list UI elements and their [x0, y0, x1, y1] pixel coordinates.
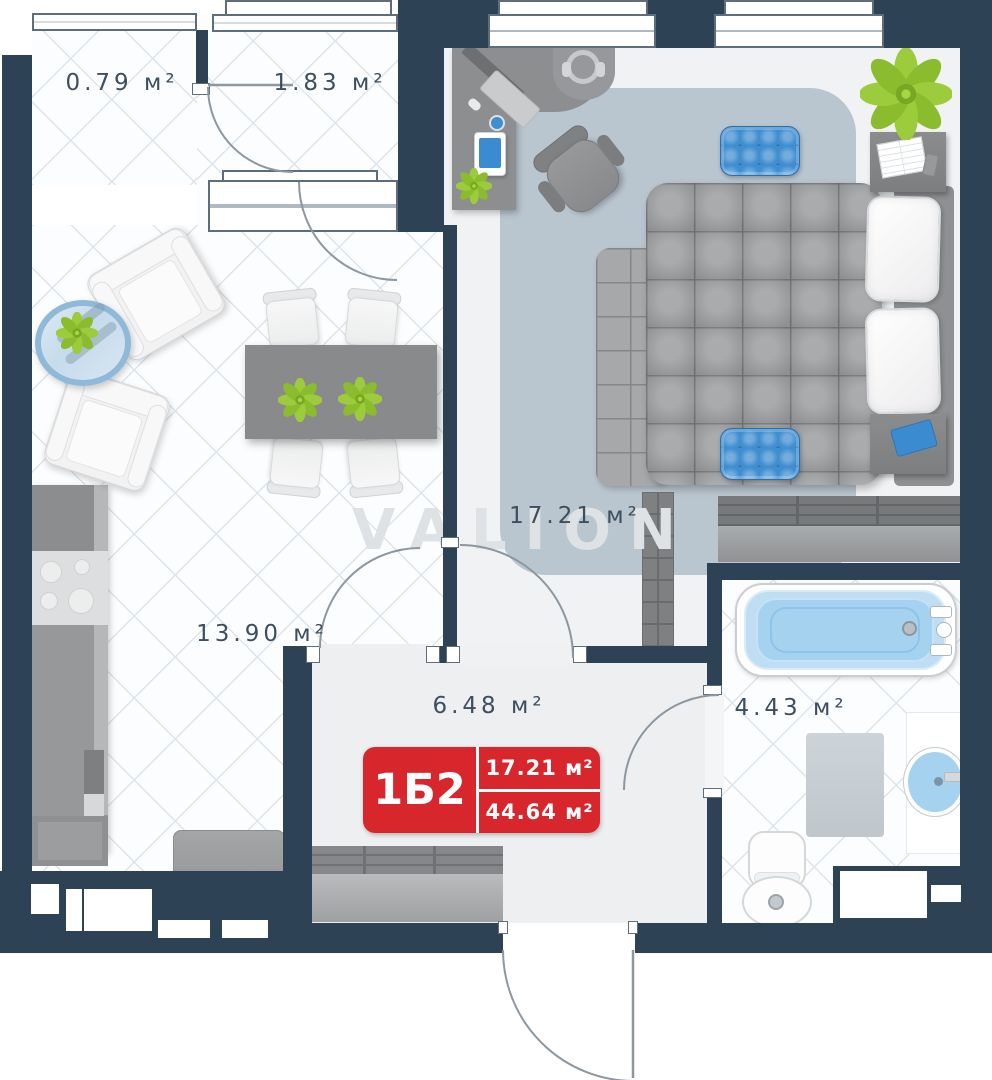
fridge: [38, 822, 102, 860]
balcony-large-area-label: 1.83 м²: [273, 70, 386, 96]
dining-chair: [341, 287, 403, 351]
wardrobe: [718, 526, 960, 562]
headphones-icon: [562, 62, 571, 77]
dining-chair: [343, 435, 405, 499]
sink-drain-icon: [934, 777, 943, 786]
kitchen-cabinet: [32, 485, 94, 551]
plant: [860, 48, 952, 140]
door-frame: [573, 646, 587, 663]
pouf: [720, 126, 800, 176]
window: [488, 14, 656, 48]
floor-plan: VALION: [0, 0, 992, 1080]
pouf: [720, 428, 800, 480]
door-frame: [703, 788, 722, 798]
balcony-small-area-label: 0.79 м²: [65, 70, 178, 96]
door-opening: [458, 644, 575, 665]
wall-niche: [66, 889, 82, 931]
kitchen-sink: [84, 750, 104, 794]
wall: [2, 55, 32, 953]
drain-icon: [902, 621, 917, 636]
bathtub-inner-ring: [770, 607, 920, 653]
webcam-icon: [489, 115, 505, 131]
desk-plant-icon: [456, 168, 492, 204]
unit-total-area: 44.64 м²: [479, 792, 600, 834]
wall: [398, 14, 444, 232]
door-frame: [703, 685, 722, 695]
tablet-screen: [479, 138, 501, 168]
bath-mat: [806, 733, 884, 837]
wall-niche: [840, 871, 908, 918]
stove: [32, 551, 108, 625]
headphones-icon: [566, 50, 600, 84]
burner-icon: [74, 559, 90, 575]
wall-niche: [931, 885, 961, 902]
wall: [960, 0, 992, 953]
door-frame: [628, 921, 638, 934]
balcony-window: [208, 180, 398, 232]
wardrobe: [718, 496, 960, 526]
door-opening: [503, 923, 635, 953]
window: [212, 14, 398, 32]
wall-niche: [222, 920, 268, 938]
unit-badge: 1Б2 17.21 м² 44.64 м²: [363, 747, 600, 833]
window: [714, 14, 884, 48]
wall-niche: [908, 871, 927, 918]
door-opening: [705, 693, 724, 790]
wall-niche: [158, 920, 210, 938]
unit-number: 1Б2: [363, 747, 479, 833]
plant: [56, 312, 98, 354]
door-frame: [426, 646, 440, 663]
faucet-icon: [930, 644, 952, 656]
plant: [338, 377, 382, 421]
burner-icon: [40, 561, 62, 583]
wall: [443, 225, 457, 646]
door-frame: [441, 537, 459, 548]
hall-wardrobe: [297, 846, 503, 874]
wall-niche: [31, 884, 59, 914]
toilet-button-icon: [768, 894, 784, 910]
pillow: [865, 195, 942, 303]
wall-niche: [84, 889, 152, 931]
door-frame: [192, 83, 210, 95]
burner-icon: [40, 592, 58, 610]
pillow: [865, 307, 942, 415]
bedroom-area-label: 17.21 м²: [509, 503, 641, 529]
door-frame: [306, 646, 320, 663]
door-frame: [498, 921, 508, 934]
hallway-area-label: 6.48 м²: [432, 693, 545, 719]
door-frame: [446, 646, 460, 663]
hall-wardrobe: [297, 874, 503, 922]
door-opening: [318, 644, 428, 665]
burner-icon: [68, 588, 94, 614]
headphones-icon: [596, 62, 605, 77]
faucet-icon: [930, 606, 952, 618]
living-area-label: 13.90 м²: [196, 621, 328, 647]
window: [32, 13, 197, 31]
bathroom-area-label: 4.43 м²: [734, 695, 847, 721]
wall: [707, 563, 962, 580]
balcony-small-floor: [32, 14, 197, 185]
unit-room-area: 17.21 м²: [479, 747, 600, 792]
faucet-knob-icon: [936, 622, 952, 638]
dining-chair: [261, 287, 323, 351]
dining-chair: [265, 435, 327, 499]
wall: [196, 30, 208, 87]
plant: [278, 378, 322, 422]
